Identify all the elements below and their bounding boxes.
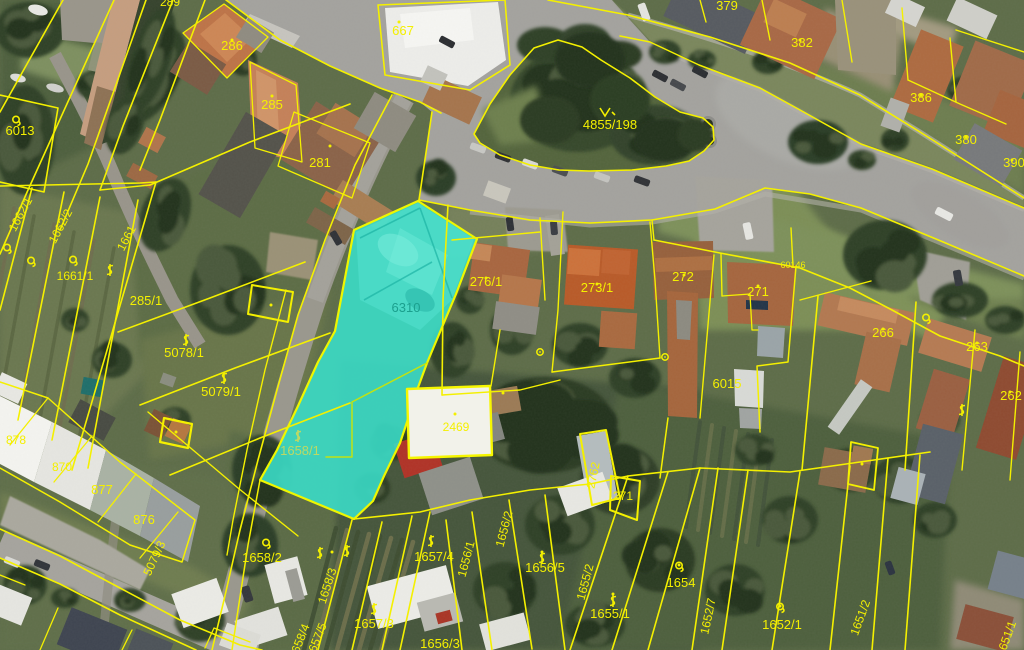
svg-text:263: 263 xyxy=(966,339,988,354)
svg-text:876: 876 xyxy=(133,512,155,527)
svg-text:1656/5: 1656/5 xyxy=(525,560,565,575)
svg-text:1656/3: 1656/3 xyxy=(420,636,460,650)
svg-text:4855/198: 4855/198 xyxy=(583,117,637,132)
svg-text:380: 380 xyxy=(955,132,977,147)
svg-text:5079/1: 5079/1 xyxy=(201,384,241,399)
svg-text:390: 390 xyxy=(1003,155,1024,170)
svg-text:271: 271 xyxy=(747,284,769,299)
svg-text:2469: 2469 xyxy=(443,420,470,434)
svg-text:1658/1: 1658/1 xyxy=(280,443,320,458)
svg-text:1655/1: 1655/1 xyxy=(590,606,630,621)
svg-text:382: 382 xyxy=(791,35,813,50)
svg-text:1661/1: 1661/1 xyxy=(57,269,94,283)
svg-text:878: 878 xyxy=(6,433,26,447)
svg-text:1654: 1654 xyxy=(667,575,696,590)
svg-text:285/1: 285/1 xyxy=(130,293,163,308)
svg-text:6015: 6015 xyxy=(713,376,742,391)
svg-text:1652/1: 1652/1 xyxy=(762,617,802,632)
svg-text:272: 272 xyxy=(672,269,694,284)
svg-text:379: 379 xyxy=(716,0,738,13)
svg-text:5078/1: 5078/1 xyxy=(164,345,204,360)
svg-text:1658/2: 1658/2 xyxy=(242,550,282,565)
svg-text:273/1: 273/1 xyxy=(581,280,614,295)
svg-text:286: 286 xyxy=(221,38,243,53)
svg-text:6013: 6013 xyxy=(6,123,35,138)
svg-text:60146: 60146 xyxy=(780,260,805,270)
svg-text:262: 262 xyxy=(1000,388,1022,403)
svg-text:285: 285 xyxy=(261,97,283,112)
svg-text:870: 870 xyxy=(52,460,72,474)
svg-text:1657/3: 1657/3 xyxy=(354,616,394,631)
svg-text:266: 266 xyxy=(872,325,894,340)
svg-text:1657/4: 1657/4 xyxy=(414,549,454,564)
svg-text:276/1: 276/1 xyxy=(470,274,503,289)
svg-text:271: 271 xyxy=(613,489,633,503)
svg-text:386: 386 xyxy=(910,90,932,105)
svg-text:281: 281 xyxy=(309,155,331,170)
svg-text:6310: 6310 xyxy=(392,300,421,315)
svg-text:667: 667 xyxy=(392,23,414,38)
svg-text:877: 877 xyxy=(91,482,113,497)
svg-text:289: 289 xyxy=(160,0,180,9)
